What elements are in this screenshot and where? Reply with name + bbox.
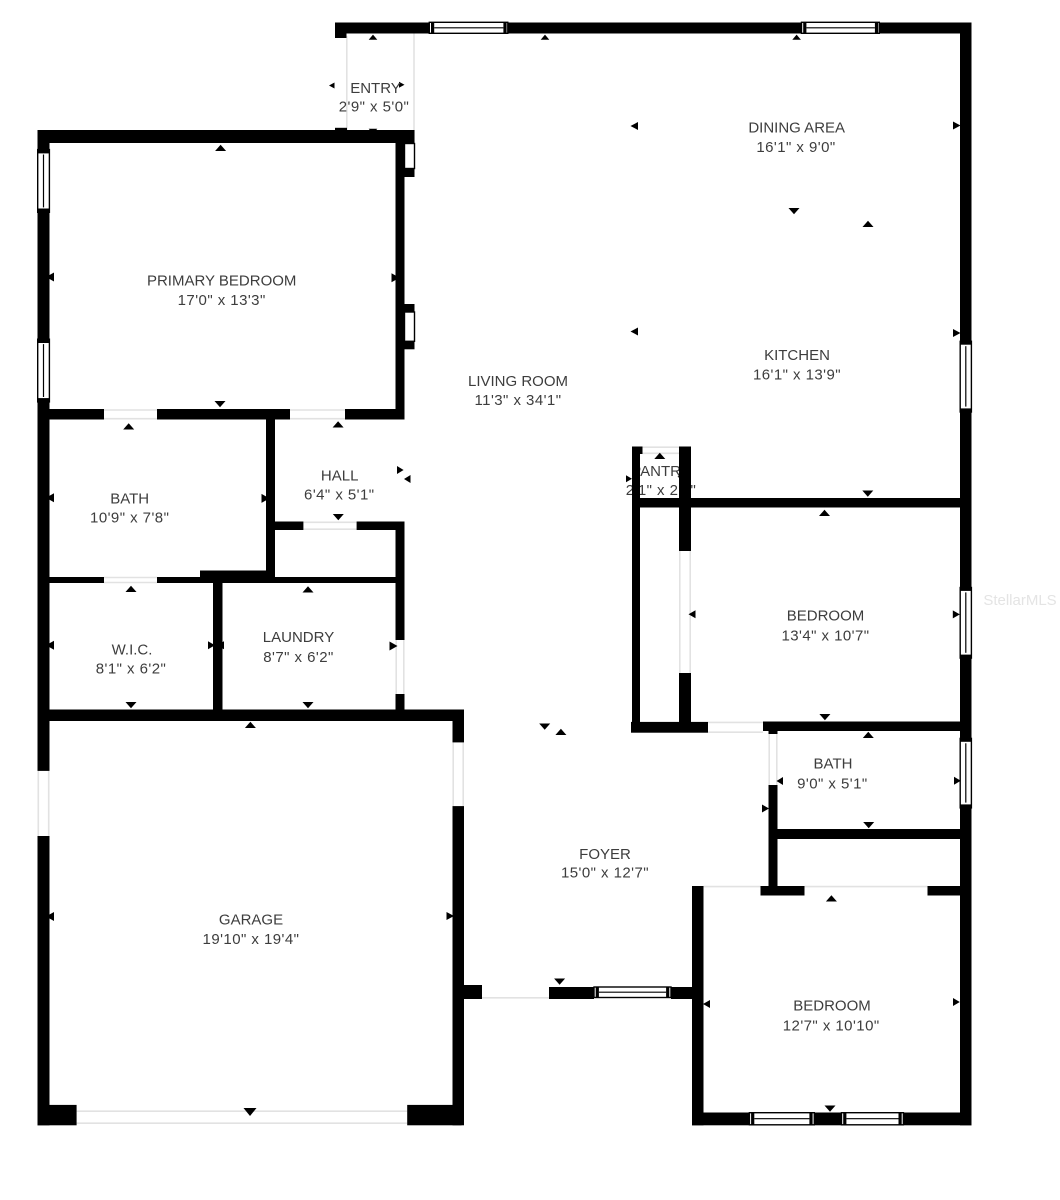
svg-text:9'0" x 5'1": 9'0" x 5'1" — [797, 776, 868, 793]
svg-text:ENTRY: ENTRY — [350, 80, 401, 97]
svg-text:11'3" x 34'1": 11'3" x 34'1" — [474, 392, 561, 409]
svg-text:PRIMARY BEDROOM: PRIMARY BEDROOM — [147, 273, 296, 290]
svg-text:KITCHEN: KITCHEN — [764, 347, 830, 364]
svg-text:FOYER: FOYER — [579, 846, 631, 863]
svg-text:10'9" x 7'8": 10'9" x 7'8" — [90, 510, 169, 527]
svg-text:16'1" x 13'9": 16'1" x 13'9" — [753, 367, 841, 384]
svg-text:BEDROOM: BEDROOM — [787, 608, 865, 625]
svg-text:12'7" x 10'10": 12'7" x 10'10" — [783, 1018, 880, 1035]
svg-text:GARAGE: GARAGE — [219, 912, 283, 929]
svg-text:BATH: BATH — [814, 756, 853, 773]
svg-text:8'1" x 6'2": 8'1" x 6'2" — [96, 661, 167, 678]
svg-text:15'0" x 12'7": 15'0" x 12'7" — [561, 865, 649, 882]
svg-text:LAUNDRY: LAUNDRY — [263, 629, 334, 646]
svg-text:2'9" x 5'0": 2'9" x 5'0" — [339, 99, 410, 116]
svg-text:BEDROOM: BEDROOM — [793, 998, 871, 1015]
svg-text:StellarMLS: StellarMLS — [983, 592, 1056, 609]
svg-text:16'1" x 9'0": 16'1" x 9'0" — [756, 139, 835, 156]
svg-text:HALL: HALL — [321, 468, 359, 485]
svg-text:19'10" x 19'4": 19'10" x 19'4" — [203, 931, 300, 948]
svg-text:8'7" x 6'2": 8'7" x 6'2" — [263, 649, 334, 666]
svg-text:6'4" x 5'1": 6'4" x 5'1" — [304, 487, 375, 504]
svg-text:LIVING ROOM: LIVING ROOM — [468, 373, 568, 390]
svg-text:13'4" x 10'7": 13'4" x 10'7" — [781, 628, 869, 645]
svg-text:17'0" x 13'3": 17'0" x 13'3" — [178, 292, 266, 309]
svg-text:BATH: BATH — [110, 491, 149, 508]
svg-text:DINING AREA: DINING AREA — [748, 120, 845, 137]
svg-text:W.I.C.: W.I.C. — [112, 642, 153, 659]
